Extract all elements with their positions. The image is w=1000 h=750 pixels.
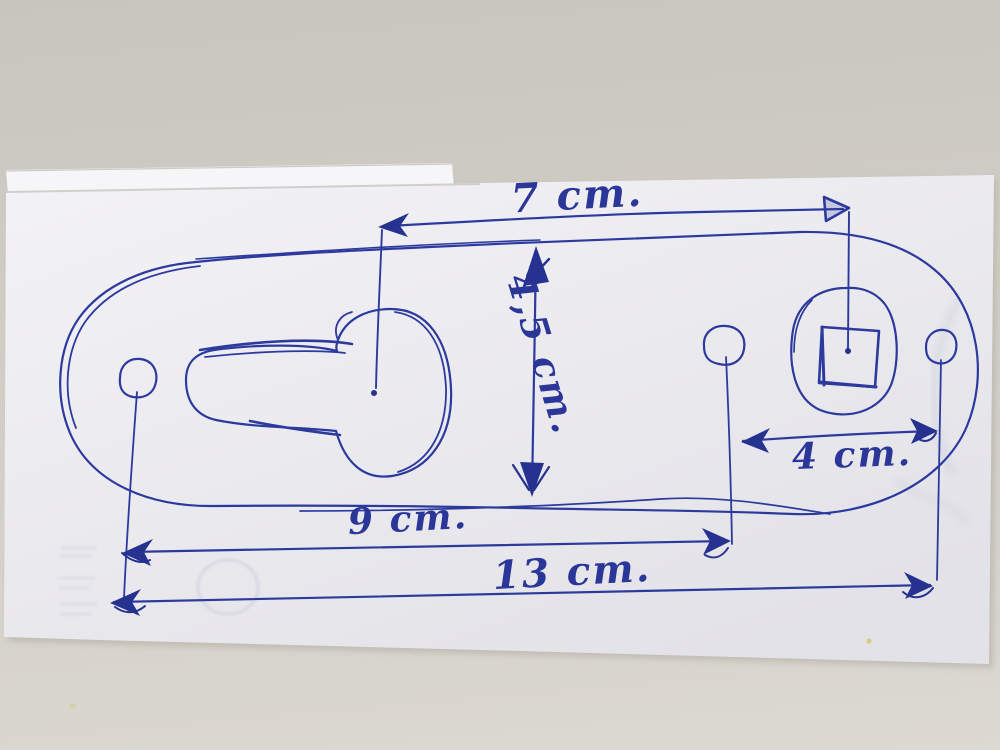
sketch-drawing xyxy=(0,0,1000,750)
dimension-label-13cm: 13 cm. xyxy=(481,544,663,599)
keyhole-center-dot xyxy=(371,390,377,396)
dimension-label-9cm: 9 cm. xyxy=(337,494,479,543)
dimension-label-4cm: 4 cm. xyxy=(781,432,922,479)
dimension-label-7cm: 7 cm. xyxy=(491,168,663,224)
photo-background: 7 cm. 4,5 cm. 4 cm. 9 cm. 13 cm. xyxy=(0,0,1000,750)
